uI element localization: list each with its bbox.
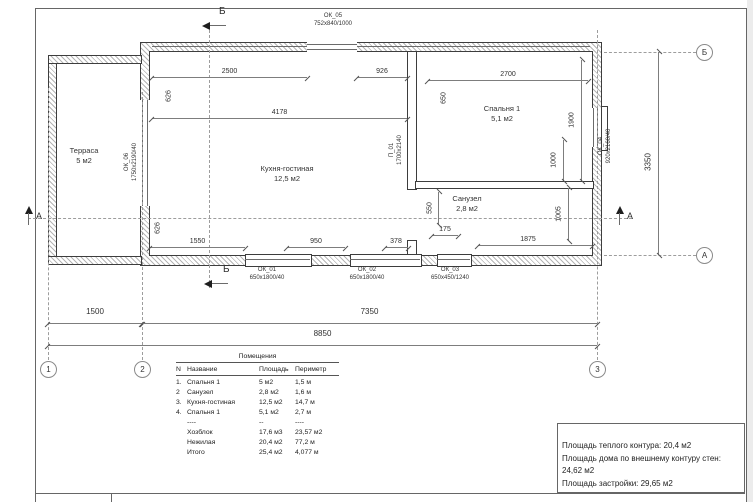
window-ok05-opening bbox=[307, 41, 357, 53]
table-row: Нежилая 20,4 м2 77,2 м bbox=[176, 437, 339, 447]
label-p01: П_01 1700х2140 bbox=[389, 135, 405, 165]
section-b-bottom-arrow-tail bbox=[212, 283, 228, 284]
section-a-left-arrow-icon bbox=[25, 206, 33, 214]
dim-1550: 1550 bbox=[150, 238, 245, 245]
dim-line-2700 bbox=[428, 80, 588, 81]
table-cell: Санузел bbox=[187, 389, 259, 396]
table-cell: Хозблок bbox=[187, 429, 259, 436]
ok06-size: 1750х2190/40 bbox=[132, 143, 140, 181]
table-cell: 25,4 м2 bbox=[259, 449, 295, 456]
grid-axis-2-line bbox=[142, 92, 143, 360]
table-cell: Нежилая bbox=[187, 439, 259, 446]
window-ok01-glazing bbox=[245, 259, 310, 260]
dim-3350: 3350 bbox=[644, 153, 653, 171]
section-a-right-label: А bbox=[627, 211, 633, 221]
table-cell: 4,077 м bbox=[295, 449, 339, 456]
label-ok06: ОК_06 1750х2190/40 bbox=[124, 143, 140, 181]
table-row: 3. Кухня-гостиная 12,5 м2 14,7 м bbox=[176, 397, 339, 407]
table-row: Хозблок 17,6 м3 23,57 м2 bbox=[176, 427, 339, 437]
table-cell: -- bbox=[259, 419, 295, 426]
room-label-bedroom: Спальня 1 5,1 м2 bbox=[457, 104, 547, 124]
room-bathroom-name: Санузел bbox=[437, 194, 497, 204]
table-title: Помещения bbox=[176, 353, 339, 360]
room-terrace-area: 5 м2 bbox=[54, 156, 114, 166]
p01-size: 1700х2140 bbox=[397, 135, 405, 165]
grid-axis-3-line bbox=[597, 30, 598, 360]
ok04-size: 920х2160/40 bbox=[606, 129, 614, 164]
rooms-table: Помещения N Название Площадь Периметр 1.… bbox=[176, 353, 339, 457]
table-cell: 5,1 м2 bbox=[259, 409, 295, 416]
room-label-bathroom: Санузел 2,8 м2 bbox=[437, 194, 497, 214]
table-row: 4. Спальня 1 5,1 м2 2,7 м bbox=[176, 407, 339, 417]
ok05-name: ОК_05 bbox=[302, 13, 364, 21]
window-ok05-frame-line1 bbox=[307, 44, 357, 45]
table-cell: 23,57 м2 bbox=[295, 429, 339, 436]
dim-line-3350 bbox=[658, 52, 659, 255]
ok01-size: 650х1800/40 bbox=[237, 275, 297, 283]
dim-line-378 bbox=[385, 247, 408, 248]
table-cell: Кухня-гостиная bbox=[187, 399, 259, 406]
axis-a-circle: А bbox=[696, 247, 713, 264]
dim-950: 950 bbox=[287, 238, 345, 245]
sheet-right-margin bbox=[747, 0, 753, 502]
dim-7350: 7350 bbox=[142, 307, 597, 316]
dim-626-top: 626 bbox=[166, 90, 173, 102]
summary-line-footprint-area: Площадь застройки: 29,65 м2 bbox=[562, 478, 740, 491]
window-ok06-frame-line2 bbox=[147, 100, 148, 206]
p01-name: П_01 bbox=[389, 135, 397, 165]
dim-line-950 bbox=[287, 247, 345, 248]
dim-line-1550 bbox=[150, 247, 245, 248]
section-b-bottom-arrow-icon bbox=[204, 280, 212, 288]
label-ok04: ОК_04 920х2160/40 bbox=[598, 129, 614, 164]
titleblock-divider bbox=[111, 493, 112, 502]
table-cell: 2,7 м bbox=[295, 409, 339, 416]
axis-a-connector bbox=[604, 255, 696, 256]
room-label-terrace: Терраса 5 м2 bbox=[54, 146, 114, 166]
table-cell: 1,6 м bbox=[295, 389, 339, 396]
top-wall-glazing-right bbox=[357, 46, 590, 47]
table-header: Название bbox=[187, 366, 259, 373]
summary-line-external-area: Площадь дома по внешнему контуру стен: 2… bbox=[562, 453, 740, 478]
table-divider-header bbox=[176, 375, 339, 376]
window-ok02-sill bbox=[350, 254, 422, 267]
titleblock-top-line bbox=[35, 493, 745, 494]
table-header: Площадь bbox=[259, 366, 295, 373]
ok02-size: 650х1800/40 bbox=[337, 275, 397, 283]
terrace-wall-top bbox=[48, 55, 142, 64]
table-cell: Итого bbox=[187, 449, 259, 456]
ok05-size: 752х840/1000 bbox=[302, 21, 364, 29]
table-divider-top bbox=[176, 362, 339, 363]
grid-circle-1: 1 bbox=[40, 361, 57, 378]
table-header-row: N Название Площадь Периметр bbox=[176, 364, 339, 374]
grid-circle-2: 2 bbox=[134, 361, 151, 378]
table-header: N bbox=[176, 366, 187, 373]
dim-line-7350 bbox=[142, 323, 597, 324]
section-b-top-arrow-tail bbox=[210, 25, 226, 26]
dim-line-175 bbox=[432, 235, 458, 236]
dim-line-4178 bbox=[152, 118, 407, 119]
table-cell: 20,4 м2 bbox=[259, 439, 295, 446]
table-cell: 4. bbox=[176, 409, 187, 416]
table-cell: Спальня 1 bbox=[187, 409, 259, 416]
window-ok03-glazing bbox=[437, 259, 470, 260]
window-ok03-sill bbox=[437, 254, 472, 267]
section-b-top-label: Б bbox=[219, 6, 226, 17]
dim-1900: 1900 bbox=[569, 112, 576, 128]
dim-1000: 1000 bbox=[551, 152, 558, 168]
dim-378: 378 bbox=[371, 238, 421, 245]
table-cell: 5 м2 bbox=[259, 379, 295, 386]
table-cell: ---- bbox=[187, 419, 259, 426]
terrace-wall-bottom bbox=[48, 256, 142, 265]
dim-line-1005 bbox=[568, 188, 569, 241]
dim-550: 550 bbox=[427, 202, 434, 214]
dim-650-bedroom: 650 bbox=[441, 92, 448, 104]
summary-line-heated-area: Площадь теплого контура: 20,4 м2 bbox=[562, 440, 740, 453]
dim-8850: 8850 bbox=[48, 329, 597, 338]
dim-line-1875 bbox=[478, 245, 592, 246]
dim-2500: 2500 bbox=[152, 68, 307, 75]
drawing-sheet: 2500 926 2700 4178 1550 950 378 175 1875… bbox=[0, 0, 753, 502]
table-row: 1. Спальня 1 5 м2 1,5 м bbox=[176, 377, 339, 387]
dim-175: 175 bbox=[432, 226, 458, 233]
dim-1875: 1875 bbox=[478, 236, 578, 243]
window-ok05-frame-line2 bbox=[307, 49, 357, 50]
grid-circle-3: 3 bbox=[589, 361, 606, 378]
ok04-name: ОК_04 bbox=[598, 129, 606, 164]
dim-1005: 1005 bbox=[556, 206, 563, 222]
room-terrace-name: Терраса bbox=[54, 146, 114, 156]
top-wall-glazing-left bbox=[152, 46, 307, 47]
dim-line-1000 bbox=[563, 140, 564, 181]
dim-line-8850 bbox=[48, 345, 597, 346]
ok03-name: ОК_03 bbox=[420, 267, 480, 275]
axis-b-circle: Б bbox=[696, 44, 713, 61]
section-a-left-label: А bbox=[36, 211, 42, 221]
section-a-right-arrow-icon bbox=[616, 206, 624, 214]
section-a-right-arrow-tail bbox=[619, 213, 620, 225]
window-ok02-glazing bbox=[350, 259, 420, 260]
label-ok02: ОК_02 650х1800/40 bbox=[337, 267, 397, 283]
table-cell: 2 bbox=[176, 389, 187, 396]
ok01-name: ОК_01 bbox=[237, 267, 297, 275]
dim-626-bottom: 626 bbox=[155, 222, 162, 234]
room-bedroom-name: Спальня 1 bbox=[457, 104, 547, 114]
interior-wall-vertical-upper bbox=[407, 51, 417, 190]
table-row: Итого 25,4 м2 4,077 м bbox=[176, 447, 339, 457]
room-kitchen-name: Кухня-гостиная bbox=[232, 164, 342, 174]
room-label-kitchen-living: Кухня-гостиная 12,5 м2 bbox=[232, 164, 342, 184]
section-a-left-arrow-tail bbox=[28, 213, 29, 225]
axis-a-line bbox=[28, 218, 632, 219]
table-cell: 1,5 м bbox=[295, 379, 339, 386]
ok06-name: ОК_06 bbox=[124, 143, 132, 181]
section-b-top-arrow-icon bbox=[202, 22, 210, 30]
table-row: 2 Санузел 2,8 м2 1,6 м bbox=[176, 387, 339, 397]
table-cell: 1. bbox=[176, 379, 187, 386]
area-summary-box: Площадь теплого контура: 20,4 м2 Площадь… bbox=[557, 423, 745, 493]
table-cell: ---- bbox=[295, 419, 339, 426]
room-kitchen-area: 12,5 м2 bbox=[232, 174, 342, 184]
window-ok01-sill bbox=[245, 254, 312, 267]
ok02-name: ОК_02 bbox=[337, 267, 397, 275]
dim-line-2500 bbox=[152, 77, 307, 78]
table-header: Периметр bbox=[295, 366, 339, 373]
dim-926: 926 bbox=[357, 68, 407, 75]
dim-2700: 2700 bbox=[428, 71, 588, 78]
dim-4178: 4178 bbox=[152, 109, 407, 116]
table-cell: 12,5 м2 bbox=[259, 399, 295, 406]
grid-axis-1-line bbox=[48, 88, 49, 360]
ok03-size: 650х450/1240 bbox=[420, 275, 480, 283]
table-cell: 3. bbox=[176, 399, 187, 406]
table-cell: 77,2 м bbox=[295, 439, 339, 446]
table-cell: Спальня 1 bbox=[187, 379, 259, 386]
dim-line-1500 bbox=[48, 323, 142, 324]
dim-line-926 bbox=[357, 77, 407, 78]
table-cell: 17,6 м3 bbox=[259, 429, 295, 436]
label-ok05: ОК_05 752х840/1000 bbox=[302, 13, 364, 29]
table-row: ---- -- ---- bbox=[176, 417, 339, 427]
room-bedroom-area: 5,1 м2 bbox=[457, 114, 547, 124]
window-ok04-frame-line1 bbox=[593, 108, 594, 147]
label-ok01: ОК_01 650х1800/40 bbox=[237, 267, 297, 283]
dim-line-1900 bbox=[581, 60, 582, 181]
label-ok03: ОК_03 650х450/1240 bbox=[420, 267, 480, 283]
room-bathroom-area: 2,8 м2 bbox=[437, 204, 497, 214]
table-cell: 2,8 м2 bbox=[259, 389, 295, 396]
table-cell: 14,7 м bbox=[295, 399, 339, 406]
section-b-bottom-label: Б bbox=[223, 264, 230, 275]
house-inner-wall bbox=[149, 51, 593, 256]
dim-1500: 1500 bbox=[48, 307, 142, 316]
axis-b-connector bbox=[604, 52, 696, 53]
